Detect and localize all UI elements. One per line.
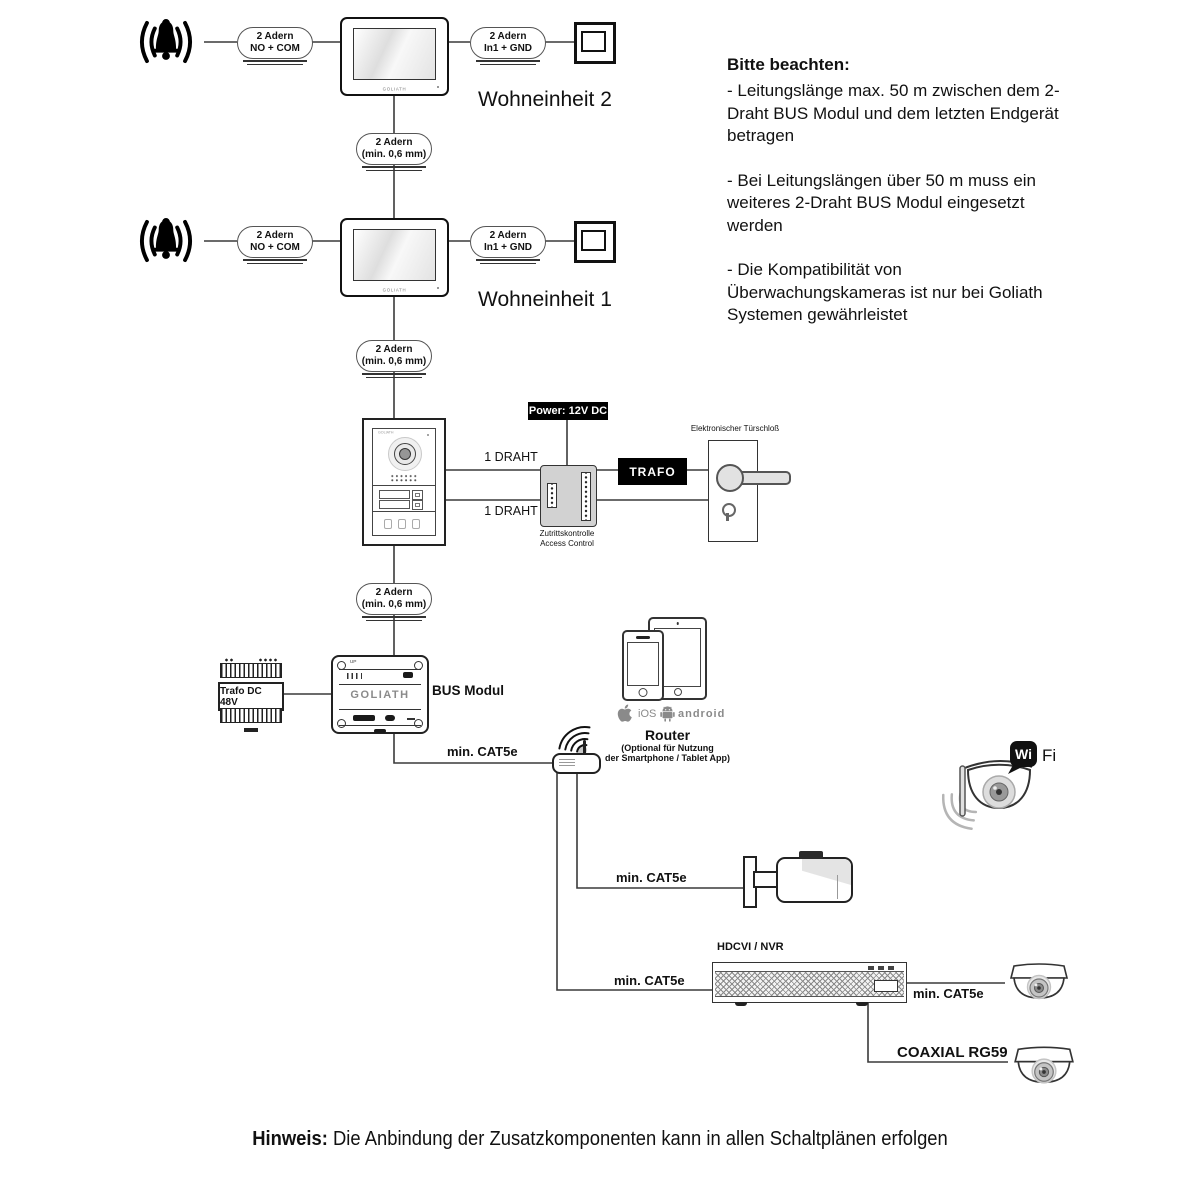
indoor-monitor-unit1: GOLIATH: [340, 218, 449, 297]
terminal-row: [220, 708, 282, 723]
access-control-unit: [540, 465, 597, 527]
wire-pill-in1-gnd: 2 Adern In1 + GND: [470, 226, 546, 258]
monitor-screen: [353, 229, 436, 281]
divider: [373, 485, 435, 486]
wifi-fi-label: Fi: [1042, 746, 1056, 765]
mic-dot: [437, 287, 439, 289]
pill-line1: 2 Adern: [257, 31, 294, 43]
nvr-device: [712, 962, 907, 1003]
camera-body: [776, 857, 853, 903]
mic-dot: [427, 434, 429, 436]
pin-header: [581, 472, 591, 521]
bus-modul-device: UP GOLIATH: [331, 655, 429, 734]
dome-camera: [1010, 1044, 1078, 1098]
indoor-monitor-unit2: GOLIATH: [340, 17, 449, 96]
call-button: [412, 500, 423, 510]
door-station-panel: GOLIATH: [372, 428, 436, 536]
pill-line2: In1 + GND: [484, 242, 532, 254]
trafo-box: TRAFO: [618, 458, 687, 485]
tablet-home-button: [674, 688, 682, 696]
pill-line2: (min. 0,6 mm): [362, 599, 426, 611]
pill-line1: 2 Adern: [376, 137, 413, 149]
trafo-din-label: Trafo DC 48V: [218, 682, 284, 711]
router-antenna: [583, 740, 586, 754]
door-station: GOLIATH: [362, 418, 446, 546]
wiring-lines: [0, 0, 1200, 1200]
smartphone: [622, 630, 664, 701]
touch-icon: [398, 519, 406, 529]
router-subtitle: (Optional für Nutzung: [600, 743, 735, 753]
pill-line1: 2 Adern: [257, 230, 294, 242]
phone-screen: [627, 642, 659, 686]
touch-icon: [384, 519, 392, 529]
terminal-dots: [224, 658, 234, 662]
bullet-camera: [743, 848, 858, 908]
wire-pill-min06: 2 Adern (min. 0,6 mm): [356, 133, 432, 165]
wire-pill-no-com: 2 Adern NO + COM: [237, 226, 313, 258]
wire-pill-min06: 2 Adern (min. 0,6 mm): [356, 583, 432, 615]
nvr-button: [868, 966, 874, 970]
router-title: Router: [600, 727, 735, 743]
pill-line2: (min. 0,6 mm): [362, 149, 426, 161]
external-button-inner: [581, 31, 606, 52]
din-power-supply: Trafo DC 48V: [218, 658, 284, 732]
external-button: [574, 22, 616, 64]
camera-iris: [996, 789, 1002, 795]
keyhole-icon: [722, 503, 736, 517]
goliath-logo: GOLIATH: [357, 88, 433, 92]
monitor-screen: [353, 28, 436, 80]
camera-antenna: [960, 766, 965, 816]
ios-label: iOS: [638, 708, 656, 720]
pill-line2: (min. 0,6 mm): [362, 356, 426, 368]
wire-pill-in1-gnd: 2 Adern In1 + GND: [470, 27, 546, 59]
phone-speaker: [636, 636, 650, 639]
sun-shade: [802, 859, 851, 885]
connector: [353, 715, 375, 721]
wifi-wi-label: Wi: [1015, 746, 1032, 762]
router-device: [552, 753, 601, 774]
android-label: android: [678, 708, 725, 720]
speaker-grille: [390, 474, 418, 483]
goliath-logo: GOLIATH: [357, 289, 433, 293]
name-plate: [379, 500, 410, 509]
name-plate: [379, 490, 410, 499]
marking: [407, 718, 415, 720]
external-button: [574, 221, 616, 263]
pill-line1: 2 Adern: [490, 31, 527, 43]
dome-camera: [1006, 962, 1072, 1012]
pill-line2: NO + COM: [250, 43, 300, 55]
goliath-logo: GOLIATH: [333, 689, 427, 701]
camera-iris: [399, 448, 411, 460]
body-seam: [837, 875, 839, 899]
android-logo-icon: [660, 705, 675, 722]
nvr-foot: [735, 1002, 747, 1006]
pill-line1: 2 Adern: [376, 587, 413, 599]
doorbell-chime-icon: [132, 213, 200, 269]
wire-pill-min06: 2 Adern (min. 0,6 mm): [356, 340, 432, 372]
mic-dot: [437, 86, 439, 88]
lens-highlight: [993, 786, 997, 790]
door-handle-rose: [716, 464, 744, 492]
connector: [403, 672, 413, 678]
doorbell-chime-icon: [132, 14, 200, 70]
wifi-camera: Wi Fi: [920, 728, 1070, 833]
apple-logo-icon: [617, 704, 633, 723]
external-button-inner: [581, 230, 606, 251]
router-signal-icon: [545, 705, 605, 755]
power-label: Power: 12V DC: [528, 402, 608, 420]
port: [374, 729, 386, 733]
up-mark: UP: [350, 660, 357, 665]
pin-header: [547, 483, 557, 508]
divider: [373, 511, 435, 512]
pill-line2: NO + COM: [250, 242, 300, 254]
phone-home-button: [639, 688, 648, 697]
wire-pill-no-com: 2 Adern NO + COM: [237, 27, 313, 59]
goliath-logo: GOLIATH: [378, 431, 394, 435]
terminal-marks: [347, 673, 365, 679]
tablet-camera-dot: [676, 622, 679, 625]
pill-line1: 2 Adern: [376, 344, 413, 356]
pill-line2: In1 + GND: [484, 43, 532, 55]
top-cap: [799, 851, 823, 859]
call-button: [412, 490, 423, 500]
din-clip: [244, 728, 258, 732]
connector: [385, 715, 395, 721]
pill-line1: 2 Adern: [490, 230, 527, 242]
nvr-button: [888, 966, 894, 970]
touch-icon: [412, 519, 420, 529]
nvr-button: [878, 966, 884, 970]
router-subtitle: der Smartphone / Tablet App): [600, 753, 735, 763]
keyhole-stem: [726, 513, 729, 521]
terminal-row: [220, 663, 282, 678]
nvr-foot: [856, 1002, 868, 1006]
router-caption: Router (Optional für Nutzung der Smartph…: [600, 727, 735, 763]
usb-port: [874, 980, 898, 992]
terminal-dots: [258, 658, 278, 662]
